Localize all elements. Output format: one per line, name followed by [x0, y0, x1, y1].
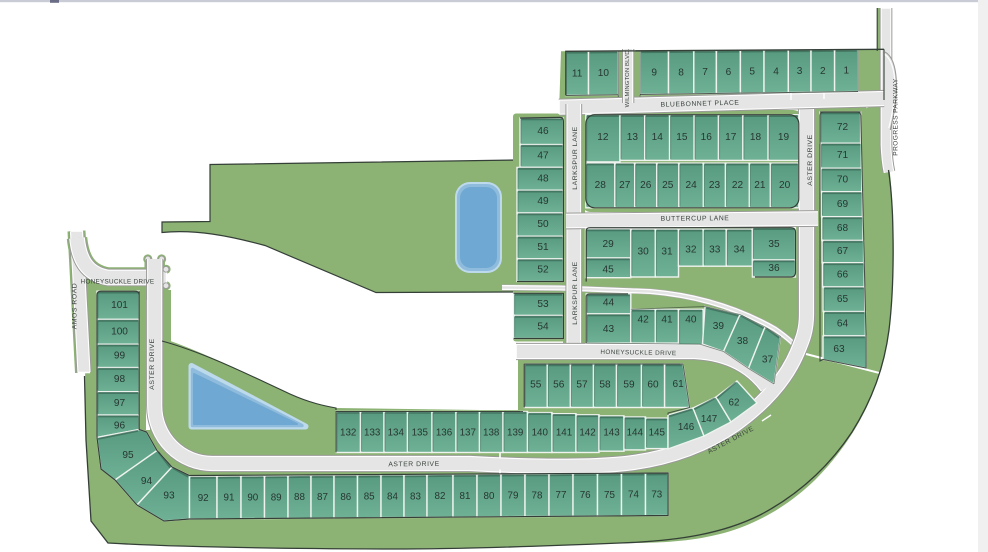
svg-text:10: 10 — [598, 68, 610, 79]
svg-text:82: 82 — [435, 491, 446, 502]
svg-text:33: 33 — [709, 245, 721, 256]
svg-text:38: 38 — [737, 336, 749, 347]
svg-text:64: 64 — [837, 318, 849, 329]
svg-text:37: 37 — [762, 355, 774, 366]
svg-text:98: 98 — [114, 374, 126, 385]
svg-text:5: 5 — [749, 67, 755, 78]
svg-text:14: 14 — [652, 132, 664, 143]
svg-text:147: 147 — [701, 414, 717, 425]
svg-text:55: 55 — [530, 379, 542, 390]
svg-text:86: 86 — [340, 492, 351, 503]
svg-text:90: 90 — [247, 493, 258, 504]
svg-text:62: 62 — [729, 398, 740, 409]
svg-text:97: 97 — [114, 398, 126, 409]
svg-text:48: 48 — [537, 173, 549, 184]
svg-text:93: 93 — [163, 491, 175, 502]
svg-text:141: 141 — [556, 428, 572, 439]
svg-text:ASTER DRIVE: ASTER DRIVE — [807, 134, 814, 185]
svg-text:22: 22 — [732, 180, 744, 191]
svg-text:78: 78 — [532, 490, 543, 501]
svg-text:100: 100 — [111, 326, 128, 337]
svg-text:67: 67 — [837, 246, 849, 257]
svg-text:WILMINGTON BLVD.: WILMINGTON BLVD. — [625, 48, 631, 107]
svg-text:39: 39 — [713, 321, 725, 332]
svg-text:25: 25 — [662, 180, 674, 191]
svg-text:80: 80 — [484, 491, 495, 502]
svg-text:20: 20 — [779, 180, 791, 191]
svg-text:47: 47 — [537, 151, 549, 162]
svg-text:49: 49 — [537, 196, 549, 207]
svg-text:63: 63 — [833, 344, 845, 355]
svg-text:8: 8 — [678, 67, 684, 78]
svg-text:91: 91 — [224, 493, 235, 504]
svg-text:23: 23 — [709, 180, 721, 191]
svg-text:46: 46 — [537, 126, 549, 137]
svg-text:32: 32 — [685, 245, 697, 256]
svg-text:4: 4 — [773, 66, 779, 77]
svg-text:72: 72 — [837, 122, 849, 133]
svg-text:16: 16 — [701, 132, 713, 143]
svg-text:13: 13 — [627, 132, 639, 143]
svg-text:AMOS ROAD: AMOS ROAD — [71, 283, 78, 330]
svg-text:36: 36 — [768, 263, 780, 274]
svg-text:136: 136 — [436, 428, 453, 439]
svg-text:30: 30 — [637, 247, 649, 258]
svg-text:144: 144 — [627, 428, 644, 439]
svg-text:2: 2 — [820, 66, 826, 77]
svg-text:59: 59 — [623, 379, 635, 390]
svg-text:134: 134 — [388, 428, 405, 439]
svg-text:52: 52 — [537, 265, 549, 276]
svg-text:135: 135 — [412, 428, 429, 439]
svg-text:77: 77 — [556, 490, 567, 501]
svg-text:73: 73 — [651, 490, 662, 501]
svg-text:88: 88 — [294, 492, 305, 503]
svg-text:140: 140 — [532, 428, 549, 439]
svg-text:146: 146 — [678, 422, 695, 433]
svg-text:75: 75 — [604, 490, 615, 501]
svg-text:9: 9 — [651, 68, 657, 79]
svg-text:43: 43 — [603, 324, 615, 335]
svg-text:92: 92 — [198, 493, 209, 504]
svg-text:54: 54 — [537, 322, 549, 333]
svg-text:PROGRESS PARKWAY: PROGRESS PARKWAY — [892, 78, 899, 156]
svg-text:145: 145 — [649, 428, 666, 439]
svg-text:15: 15 — [676, 132, 688, 143]
svg-text:HONEYSUCKLE DRIVE: HONEYSUCKLE DRIVE — [600, 349, 676, 357]
svg-text:34: 34 — [734, 245, 746, 256]
svg-text:143: 143 — [603, 428, 620, 439]
svg-text:18: 18 — [750, 132, 762, 143]
svg-text:132: 132 — [340, 428, 356, 439]
svg-text:84: 84 — [387, 492, 398, 503]
svg-text:87: 87 — [317, 492, 328, 503]
svg-text:56: 56 — [553, 379, 565, 390]
svg-text:41: 41 — [661, 315, 673, 326]
svg-text:95: 95 — [122, 450, 134, 461]
svg-text:21: 21 — [754, 180, 766, 191]
svg-text:142: 142 — [579, 428, 595, 439]
svg-text:26: 26 — [640, 180, 652, 191]
svg-text:71: 71 — [837, 150, 849, 161]
svg-text:19: 19 — [778, 132, 790, 143]
svg-text:76: 76 — [580, 490, 591, 501]
svg-text:50: 50 — [537, 219, 549, 230]
svg-text:60: 60 — [647, 379, 659, 390]
svg-text:96: 96 — [114, 421, 126, 432]
svg-text:11: 11 — [572, 68, 583, 79]
svg-text:85: 85 — [364, 492, 375, 503]
svg-text:101: 101 — [111, 300, 128, 311]
svg-text:3: 3 — [797, 66, 803, 77]
svg-text:133: 133 — [364, 428, 381, 439]
svg-text:57: 57 — [576, 379, 588, 390]
svg-text:LARKSPUR LANE: LARKSPUR LANE — [572, 126, 579, 189]
svg-text:51: 51 — [537, 242, 549, 253]
svg-text:61: 61 — [672, 379, 684, 390]
svg-text:24: 24 — [685, 180, 697, 191]
svg-text:42: 42 — [637, 315, 649, 326]
svg-text:ASTER DRIVE: ASTER DRIVE — [149, 338, 156, 389]
svg-text:139: 139 — [507, 428, 523, 439]
svg-text:HONEYSUCKLE DRIVE: HONEYSUCKLE DRIVE — [81, 278, 155, 285]
svg-text:44: 44 — [603, 298, 615, 309]
svg-text:LARKSPUR LANE: LARKSPUR LANE — [572, 261, 579, 324]
svg-text:69: 69 — [837, 199, 849, 210]
svg-text:89: 89 — [271, 492, 282, 503]
svg-text:66: 66 — [837, 269, 849, 280]
svg-text:65: 65 — [837, 294, 849, 305]
svg-text:53: 53 — [537, 299, 549, 310]
svg-text:138: 138 — [483, 428, 500, 439]
svg-text:81: 81 — [460, 491, 471, 502]
svg-text:ASTER DRIVE: ASTER DRIVE — [388, 461, 439, 468]
svg-text:7: 7 — [702, 67, 708, 78]
svg-text:45: 45 — [602, 265, 614, 276]
svg-text:83: 83 — [410, 491, 421, 502]
svg-text:79: 79 — [508, 491, 519, 502]
svg-text:94: 94 — [141, 476, 153, 487]
svg-text:12: 12 — [597, 132, 609, 143]
svg-text:137: 137 — [460, 428, 476, 439]
svg-text:58: 58 — [599, 379, 611, 390]
svg-text:27: 27 — [619, 180, 631, 191]
svg-text:35: 35 — [768, 239, 780, 250]
svg-text:29: 29 — [602, 239, 614, 250]
svg-text:1: 1 — [843, 66, 849, 77]
svg-text:31: 31 — [661, 247, 673, 258]
svg-text:40: 40 — [685, 315, 697, 326]
svg-text:17: 17 — [725, 132, 737, 143]
svg-text:6: 6 — [726, 67, 732, 78]
svg-text:70: 70 — [837, 175, 849, 186]
svg-text:68: 68 — [837, 223, 849, 234]
svg-text:28: 28 — [595, 180, 607, 191]
svg-text:74: 74 — [628, 490, 639, 501]
svg-text:99: 99 — [114, 350, 126, 361]
svg-text:BUTTERCUP LANE: BUTTERCUP LANE — [661, 215, 730, 223]
